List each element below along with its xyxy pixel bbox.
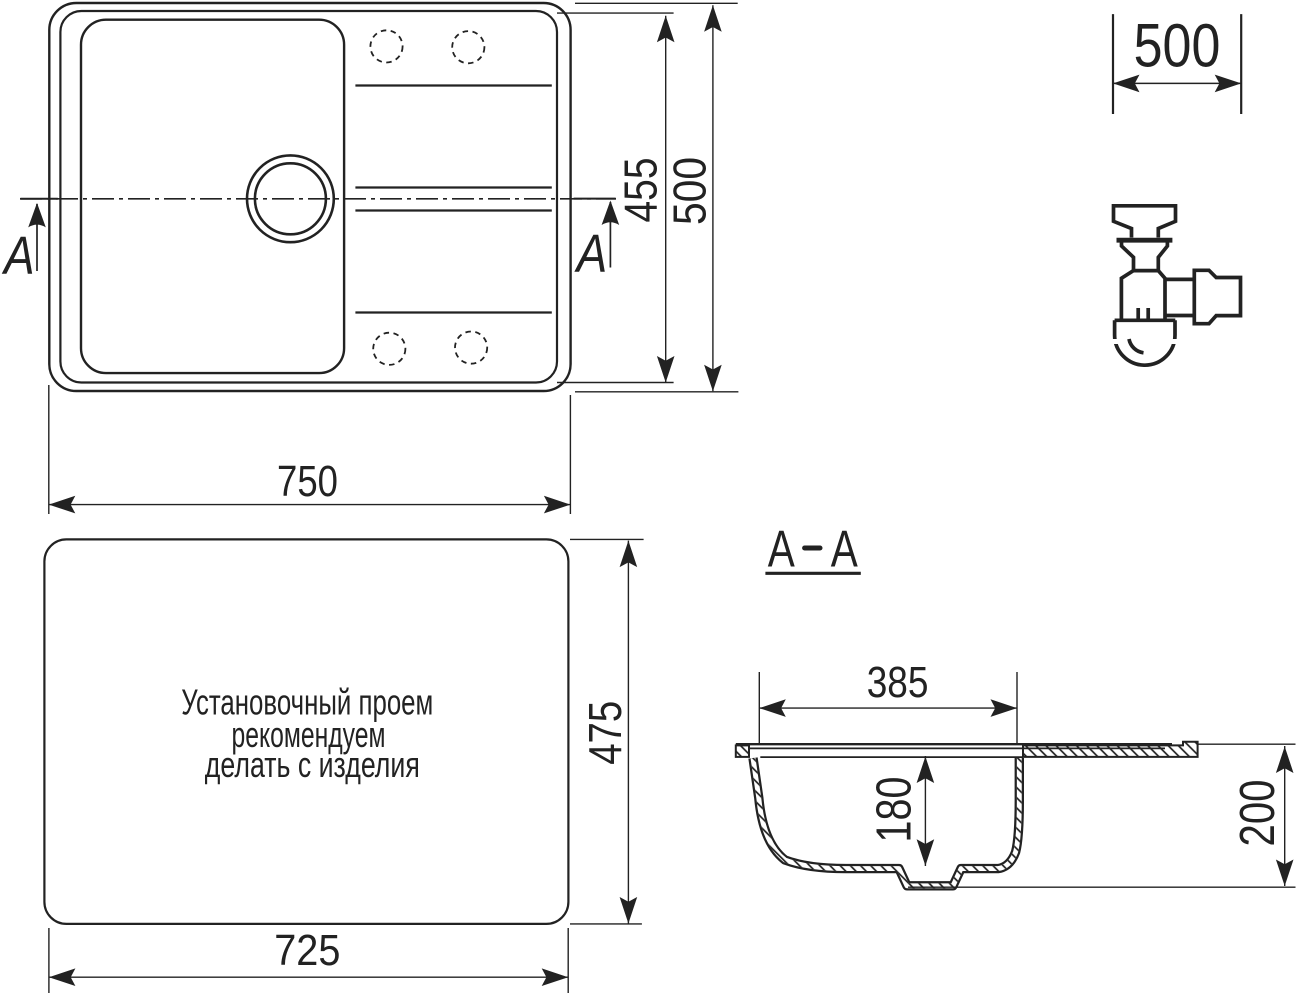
svg-text:500: 500 [665, 157, 717, 225]
svg-text:A: A [768, 520, 795, 578]
svg-text:455: 455 [616, 157, 668, 222]
svg-text:A: A [574, 224, 607, 284]
svg-text:475: 475 [580, 701, 632, 765]
svg-text:A: A [831, 520, 858, 578]
svg-text:200: 200 [1230, 780, 1285, 847]
svg-text:750: 750 [277, 457, 338, 506]
svg-text:180: 180 [866, 777, 921, 843]
svg-text:делать с изделия: делать с изделия [205, 744, 420, 785]
svg-text:725: 725 [274, 926, 340, 975]
svg-text:500: 500 [1134, 12, 1221, 80]
svg-text:385: 385 [867, 657, 929, 706]
svg-text:A: A [1, 226, 34, 286]
